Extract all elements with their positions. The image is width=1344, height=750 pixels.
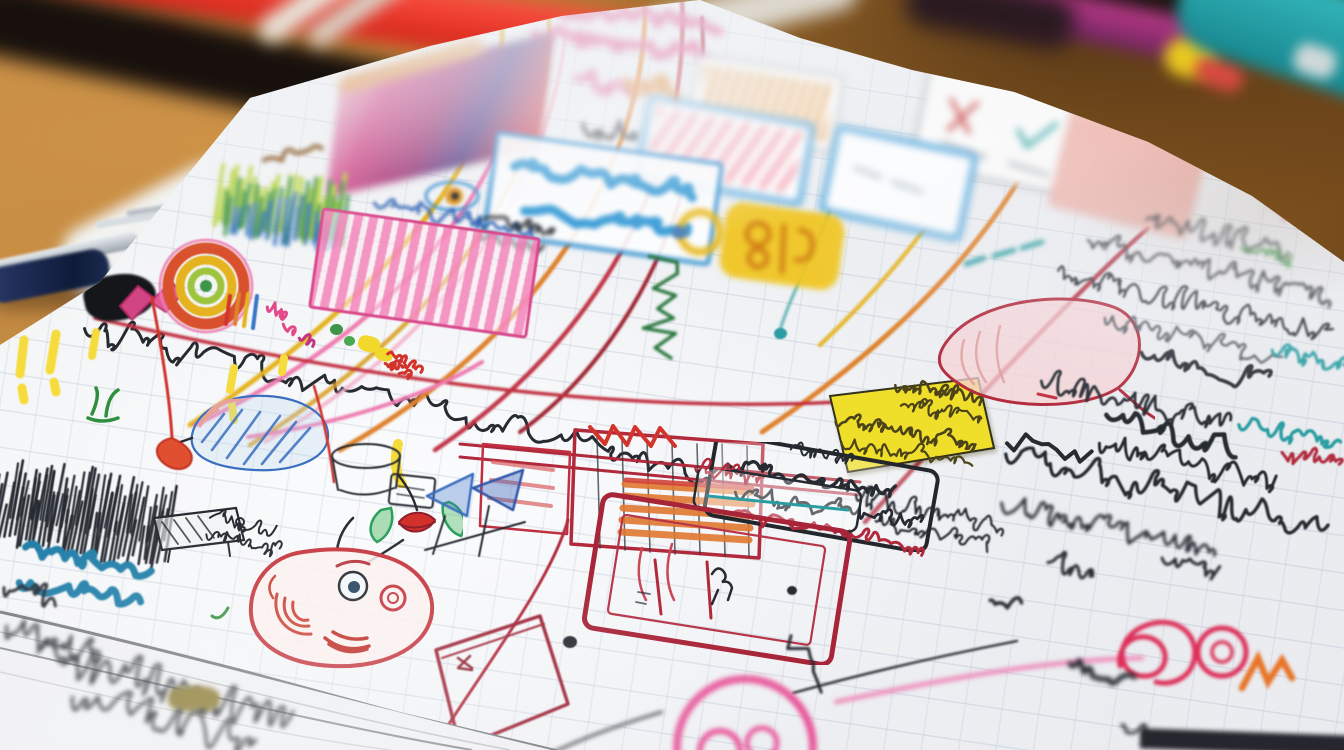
ink-dot xyxy=(563,636,577,648)
rainbow-strip xyxy=(222,288,262,332)
yellow-highlight-blob xyxy=(706,200,856,298)
pink-circle-doodle xyxy=(640,655,855,750)
teal-dashes xyxy=(958,234,1050,274)
teal-dot xyxy=(774,328,787,339)
red-cable-left xyxy=(128,290,218,490)
green-tick xyxy=(208,604,230,622)
orange-blob-scribbles xyxy=(706,200,856,298)
green-dot xyxy=(330,324,343,335)
yellow-dash xyxy=(276,352,294,378)
photo-scene xyxy=(0,0,1344,750)
blue-dot xyxy=(672,226,687,239)
green-dot xyxy=(344,336,355,346)
green-flame-scribble xyxy=(585,251,695,366)
